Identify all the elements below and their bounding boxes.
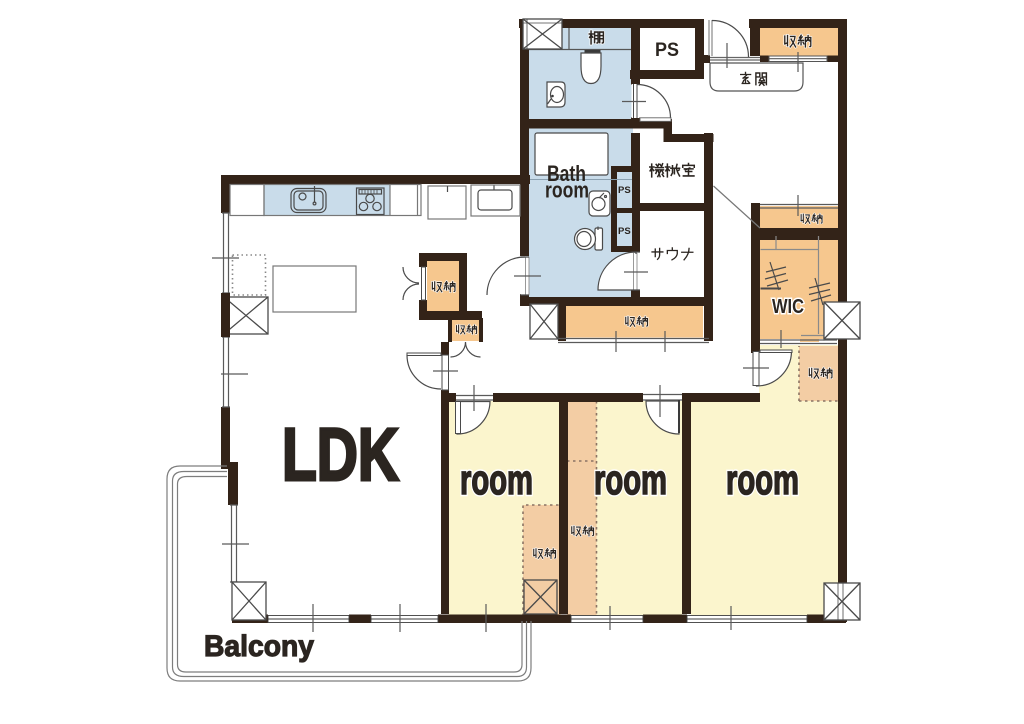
svg-text:room: room xyxy=(594,456,667,503)
svg-text:room: room xyxy=(545,178,589,203)
svg-text:room: room xyxy=(726,456,799,503)
svg-text:PS: PS xyxy=(655,40,679,61)
svg-text:WIC: WIC xyxy=(772,296,804,318)
svg-text:PS: PS xyxy=(618,185,631,196)
svg-text:room: room xyxy=(460,456,533,503)
svg-text:PS: PS xyxy=(618,226,631,237)
svg-text:LDK: LDK xyxy=(282,413,399,496)
svg-text:Balcony: Balcony xyxy=(204,630,314,663)
